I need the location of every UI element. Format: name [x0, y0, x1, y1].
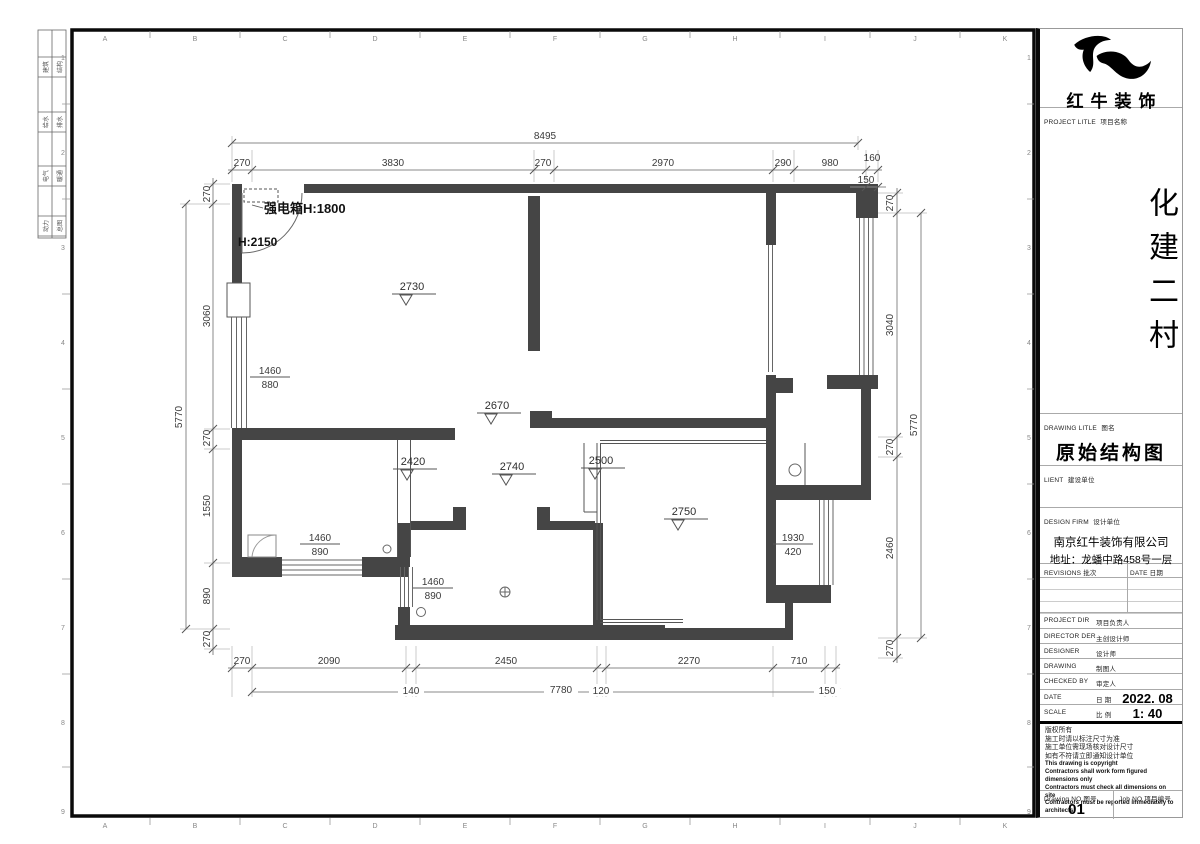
- design-firm-section: DESIGN FIRM 设计单位 南京红牛装饰有限公司 地址：龙蟠中路458号一…: [1040, 508, 1182, 564]
- grid-number: 6: [1027, 530, 1031, 537]
- row-value: [1112, 629, 1183, 630]
- row-value: [1112, 659, 1183, 660]
- grid-letter: D: [372, 823, 377, 830]
- grid-number: 8: [1027, 720, 1031, 727]
- date-value: 2022. 08: [1112, 690, 1183, 706]
- extension-lines: [180, 136, 927, 697]
- power-box-label: 强电箱H:1800: [264, 201, 346, 216]
- revisions-section: REVISIONS 批次 DATE 日期: [1040, 564, 1182, 613]
- row-label-cn: 比 例: [1096, 709, 1111, 719]
- project-name: 化建二村: [1040, 150, 1182, 400]
- checked-by-row: CHECKED BY 审定人: [1040, 674, 1182, 690]
- window-width: 1930: [782, 533, 805, 544]
- level-markers: 2730 2670 2420 2740 2500 2750: [392, 281, 708, 530]
- dim-label: 3830: [382, 158, 405, 169]
- dim-label: 890: [202, 587, 213, 604]
- grid-letter: C: [282, 823, 287, 830]
- grid-letter: F: [553, 823, 557, 830]
- level-label: 2750: [672, 506, 696, 518]
- row-value: [1112, 613, 1183, 614]
- row-label-en: PROJECT DIR: [1044, 617, 1089, 624]
- annotations: 强电箱H:1800 H:2150: [238, 201, 346, 249]
- grid-number: 3: [1027, 245, 1031, 252]
- window-width: 1460: [422, 577, 445, 588]
- window-sill: 890: [312, 547, 329, 558]
- number-section: Drawing NO 图号 01 Job NO 项目编号: [1040, 790, 1182, 819]
- designer-row: DESIGNER 设计师: [1040, 644, 1182, 659]
- grid-letter: I: [824, 823, 826, 830]
- grid-number: 2: [1027, 150, 1031, 157]
- date-col-en: DATE: [1130, 570, 1148, 577]
- grid-number: 9: [61, 809, 65, 816]
- director-row: DIRECTOR DER 主创设计师: [1040, 629, 1182, 644]
- client-label-cn: 建设单位: [1068, 477, 1095, 484]
- dim-label: 2270: [678, 656, 701, 667]
- drawing-label-en: DRAWING LITLE: [1044, 425, 1097, 432]
- dim-label: 270: [885, 639, 896, 656]
- grid-number: 6: [61, 530, 65, 537]
- dim-label: 8495: [534, 131, 557, 142]
- grid-number: 5: [1027, 435, 1031, 442]
- window-sill: 420: [785, 547, 802, 558]
- grid-number: 4: [61, 340, 65, 347]
- window-width: 1460: [309, 533, 332, 544]
- drawing-title-section: DRAWING LITLE 图名 原始结构图: [1040, 414, 1182, 466]
- row-label-en: SCALE: [1044, 709, 1066, 716]
- dimension-lines: [182, 139, 925, 696]
- signoff-cell: 总图: [56, 220, 64, 232]
- dim-label: 5770: [174, 405, 185, 428]
- project-name-section: PROJECT LITLE 项目名称 化建二村: [1040, 108, 1182, 414]
- pipe-icon: [789, 464, 801, 476]
- level-label: 2730: [400, 281, 424, 293]
- row-label-en: DIRECTOR DER: [1044, 633, 1096, 640]
- level-label: 2500: [589, 455, 613, 467]
- row-value: [1112, 674, 1183, 675]
- dim-label: 270: [202, 185, 213, 202]
- firm-name: 南京红牛装饰有限公司: [1040, 534, 1182, 550]
- row-label-cn: 制图人: [1096, 663, 1116, 673]
- grid-letter: G: [642, 823, 647, 830]
- dim-label: 5770: [909, 413, 920, 436]
- dim-label: 2970: [652, 158, 675, 169]
- revisions-label-cn: 批次: [1083, 570, 1096, 577]
- row-label-en: DATE: [1044, 694, 1062, 701]
- row-label-cn: 项目负责人: [1096, 617, 1130, 627]
- dim-label: 980: [822, 158, 839, 169]
- door-height-label: H:2150: [238, 235, 278, 249]
- dim-label: 2460: [885, 536, 896, 559]
- row-value: [1112, 644, 1183, 645]
- row-label-en: CHECKED BY: [1044, 678, 1088, 685]
- dim-label: 7780: [550, 685, 573, 696]
- drawing-no: 01: [1040, 801, 1113, 818]
- grid-letter: C: [282, 36, 287, 43]
- dim-label: 270: [202, 630, 213, 647]
- grid-letter: B: [193, 823, 198, 830]
- closet-door-arc: [252, 535, 276, 557]
- level-label: 2670: [485, 400, 509, 412]
- level-label: 2420: [401, 456, 425, 468]
- firm-label-cn: 设计单位: [1093, 519, 1120, 526]
- drawing-title: 原始结构图: [1040, 438, 1182, 465]
- dim-label: 1550: [202, 494, 213, 517]
- window-sill: 880: [262, 380, 279, 391]
- row-label-cn: 审定人: [1096, 678, 1116, 688]
- dim-label: 3040: [885, 313, 896, 336]
- level-label: 2740: [500, 461, 524, 473]
- date-col-cn: 日期: [1150, 570, 1163, 577]
- dim-label: 2450: [495, 656, 518, 667]
- grid-letter: B: [193, 36, 198, 43]
- grid-letter: K: [1003, 36, 1008, 43]
- revisions-label-en: REVISIONS: [1044, 570, 1081, 577]
- scale-row: SCALE 比 例 1: 40: [1040, 705, 1182, 721]
- drawing-no-label-en: Drawing NO: [1044, 796, 1081, 803]
- dim-label: 710: [791, 656, 808, 667]
- note-line: Contractors shall work form figured dime…: [1045, 769, 1177, 785]
- grid-number: 7: [1027, 625, 1031, 632]
- grid-number: 1: [61, 55, 65, 62]
- dim-label: 270: [885, 438, 896, 455]
- grid-letter: D: [372, 36, 377, 43]
- window-sill: 890: [425, 591, 442, 602]
- signoff-cell: 给水: [42, 116, 50, 128]
- title-block: 红牛装饰 PROJECT LITLE 项目名称 化建二村 DRAWING LIT…: [1036, 28, 1183, 818]
- grid-number: 5: [61, 435, 65, 442]
- client-section: LIENT 建设单位: [1040, 466, 1182, 508]
- dim-label: 3060: [202, 304, 213, 327]
- signoff-cell: 建筑: [42, 61, 50, 73]
- job-no-cell: Job NO 项目编号: [1114, 791, 1182, 819]
- grid-letter: H: [732, 36, 737, 43]
- signoff-cell: 电气: [42, 170, 50, 182]
- grid-letter: J: [913, 823, 917, 830]
- grid-letter: F: [553, 36, 557, 43]
- note-line: 施工时请以标注尺寸为准: [1045, 736, 1177, 745]
- job-no-label-en: Job NO: [1119, 796, 1142, 803]
- dim-label: 140: [403, 686, 420, 697]
- grid-letter: H: [732, 823, 737, 830]
- drawing-label-cn: 图名: [1101, 425, 1114, 432]
- grid-number: 8: [61, 720, 65, 727]
- project-label-en: PROJECT LITLE: [1044, 119, 1096, 126]
- revision-row: [1040, 590, 1182, 602]
- plan-canvas: 建筑 结构 给水 排水 电气 暖通 动力 总图 A B C D E F G H …: [0, 0, 1200, 844]
- row-label-cn: 主创设计师: [1096, 633, 1130, 643]
- grid-number: 4: [1027, 340, 1031, 347]
- grid-letter: E: [463, 823, 468, 830]
- dim-label: 290: [775, 158, 792, 169]
- window-width: 1460: [259, 366, 282, 377]
- window-labels: 1460 880 1460 890 1460 890 1930 420: [250, 366, 813, 602]
- grid-letter: E: [463, 36, 468, 43]
- dim-label: 150: [819, 686, 836, 697]
- notes-section: 版权所有 施工时请以标注尺寸为准 施工单位需现场核对设计尺寸 如有不符请立即通知…: [1040, 724, 1182, 790]
- date-row: DATE 日 期 2022. 08: [1040, 690, 1182, 705]
- pipe-icon: [417, 608, 426, 617]
- grid-number: 9: [1027, 809, 1031, 816]
- dim-label: 120: [593, 686, 610, 697]
- dim-label: 270: [535, 158, 552, 169]
- grid-number: 2: [61, 150, 65, 157]
- note-line: 如有不符请立即通知设计单位: [1045, 753, 1177, 762]
- note-line: This drawing is copyright: [1045, 761, 1177, 769]
- grid-letter: G: [642, 36, 647, 43]
- dim-label: 160: [864, 153, 881, 164]
- note-line: 版权所有: [1045, 727, 1177, 736]
- grid-letter: I: [824, 36, 826, 43]
- drawing-no-cell: Drawing NO 图号 01: [1040, 791, 1114, 819]
- firm-label-en: DESIGN FIRM: [1044, 519, 1089, 526]
- grid-letter: A: [103, 823, 108, 830]
- drawing-sheet: 建筑 结构 给水 排水 电气 暖通 动力 总图 A B C D E F G H …: [0, 0, 1200, 844]
- signoff-cell: 动力: [42, 220, 50, 232]
- grid-number: 1: [1027, 55, 1031, 62]
- dim-label: 2090: [318, 656, 341, 667]
- redniu-bull-logo-icon: [1063, 32, 1159, 80]
- project-label-cn: 项目名称: [1100, 119, 1127, 126]
- drawing-no-label-cn: 图号: [1083, 796, 1096, 803]
- grid-letter: K: [1003, 823, 1008, 830]
- dim-label: 270: [234, 656, 251, 667]
- drawing-person-row: DRAWING 制图人: [1040, 659, 1182, 674]
- signoff-cell: 结构: [56, 61, 64, 73]
- note-line: 施工单位需现场核对设计尺寸: [1045, 744, 1177, 753]
- dim-label: 270: [202, 429, 213, 446]
- signoff-cell: 暖通: [56, 170, 64, 182]
- grid-number: 3: [61, 245, 65, 252]
- dim-label: 150: [858, 175, 875, 186]
- dim-label: 270: [885, 194, 896, 211]
- walls: [227, 184, 878, 640]
- pipe-icon: [383, 545, 391, 553]
- row-label-en: DESIGNER: [1044, 648, 1080, 655]
- grid-letter: J: [913, 36, 917, 43]
- row-label-cn: 设计师: [1096, 648, 1116, 658]
- grid-letter: A: [103, 36, 108, 43]
- job-no-label-cn: 项目编号: [1144, 796, 1171, 803]
- client-label-en: LIENT: [1044, 477, 1063, 484]
- row-label-cn: 日 期: [1096, 694, 1111, 704]
- signoff-cell: 排水: [56, 116, 64, 128]
- logo-section: 红牛装饰: [1040, 29, 1182, 108]
- project-dir-row: PROJECT DIR 项目负责人: [1040, 613, 1182, 629]
- grid-number: 7: [61, 625, 65, 632]
- scale-value: 1: 40: [1112, 705, 1183, 721]
- dim-label: 270: [234, 158, 251, 169]
- revision-row: [1040, 578, 1182, 590]
- row-label-en: DRAWING: [1044, 663, 1077, 670]
